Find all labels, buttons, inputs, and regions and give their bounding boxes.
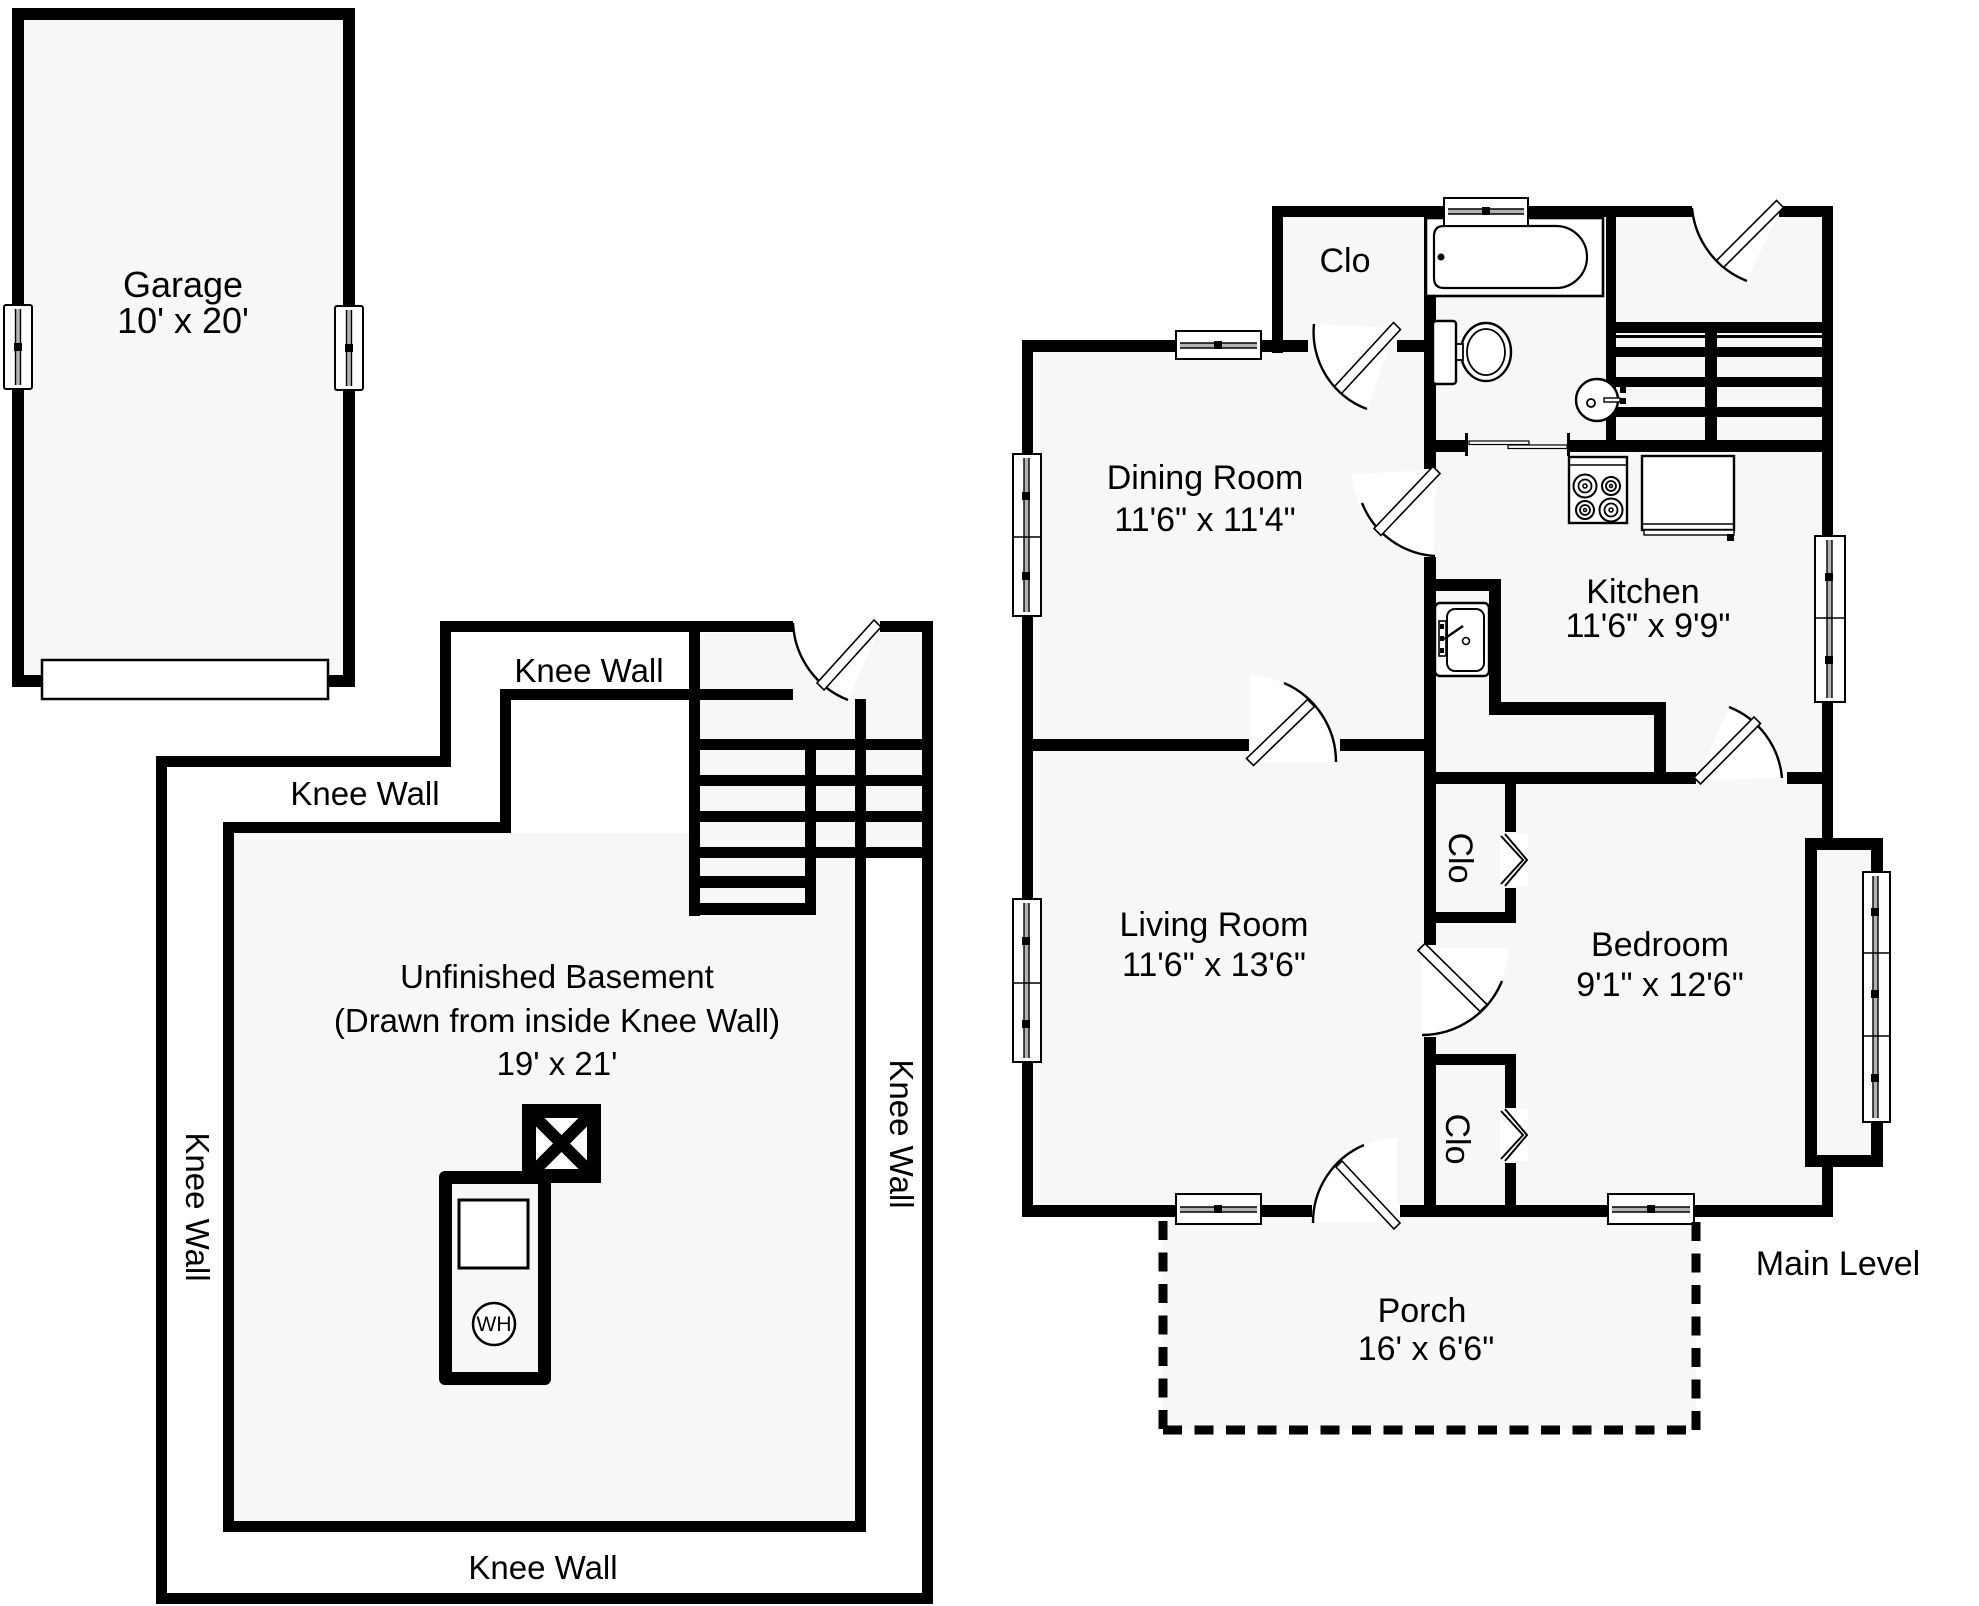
svg-text:Clo: Clo xyxy=(1319,242,1370,280)
svg-text:Kitchen: Kitchen xyxy=(1586,573,1699,611)
svg-text:11'6" x 13'6": 11'6" x 13'6" xyxy=(1122,946,1306,984)
svg-text:Knee Wall: Knee Wall xyxy=(179,1132,216,1281)
svg-text:Living Room: Living Room xyxy=(1120,906,1309,944)
svg-text:Garage: Garage xyxy=(123,264,243,305)
svg-text:WH: WH xyxy=(477,1313,512,1336)
svg-text:Dining Room: Dining Room xyxy=(1107,459,1304,497)
svg-text:Knee Wall: Knee Wall xyxy=(468,1549,617,1586)
svg-text:10' x 20': 10' x 20' xyxy=(117,300,249,341)
svg-text:Bedroom: Bedroom xyxy=(1591,926,1729,964)
svg-text:Porch: Porch xyxy=(1378,1292,1467,1330)
svg-text:16' x 6'6": 16' x 6'6" xyxy=(1358,1330,1495,1368)
svg-text:Knee Wall: Knee Wall xyxy=(514,652,663,689)
svg-text:Clo: Clo xyxy=(1441,832,1479,883)
svg-text:Clo: Clo xyxy=(1438,1113,1476,1164)
svg-text:Main Level: Main Level xyxy=(1756,1245,1920,1283)
svg-text:11'6" x 11'4": 11'6" x 11'4" xyxy=(1114,501,1295,539)
svg-text:11'6" x 9'9": 11'6" x 9'9" xyxy=(1565,607,1730,645)
svg-text:9'1" x 12'6": 9'1" x 12'6" xyxy=(1576,966,1744,1004)
svg-text:Knee Wall: Knee Wall xyxy=(290,775,439,812)
svg-text:(Drawn from inside Knee Wall): (Drawn from inside Knee Wall) xyxy=(334,1002,780,1039)
svg-text:Knee Wall: Knee Wall xyxy=(883,1059,920,1208)
svg-text:19' x 21': 19' x 21' xyxy=(497,1045,618,1082)
svg-text:Unfinished Basement: Unfinished Basement xyxy=(400,958,714,995)
